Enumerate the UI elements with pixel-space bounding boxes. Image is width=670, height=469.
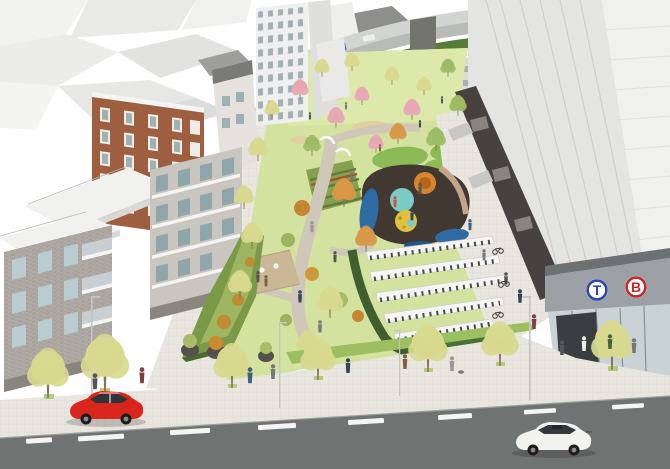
park-rendering: T B bbox=[0, 0, 670, 469]
b-badge-letter: B bbox=[631, 279, 641, 295]
sunroof bbox=[552, 425, 562, 429]
b-line-badge: B bbox=[625, 276, 647, 298]
rendering-canvas: T B bbox=[0, 0, 670, 469]
dog bbox=[458, 370, 464, 374]
t-line-badge: T bbox=[586, 279, 608, 301]
stone-windows bbox=[12, 244, 78, 348]
corner-balconies bbox=[82, 237, 112, 328]
t-badge-letter: T bbox=[593, 282, 602, 298]
